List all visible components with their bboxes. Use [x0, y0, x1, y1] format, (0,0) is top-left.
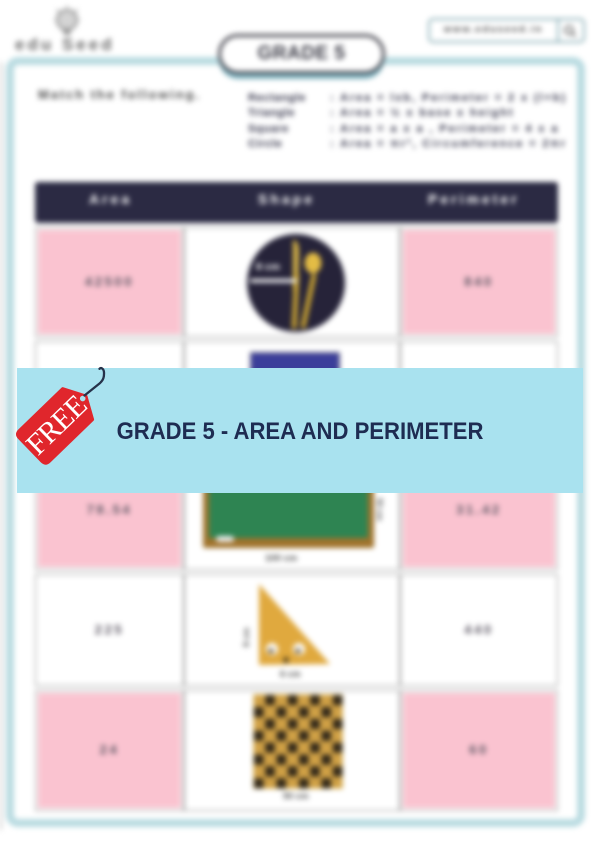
svg-text:8 cm: 8 cm: [256, 261, 280, 273]
svg-text:6 cm: 6 cm: [280, 669, 301, 679]
svg-text:8 cm: 8 cm: [241, 627, 251, 647]
